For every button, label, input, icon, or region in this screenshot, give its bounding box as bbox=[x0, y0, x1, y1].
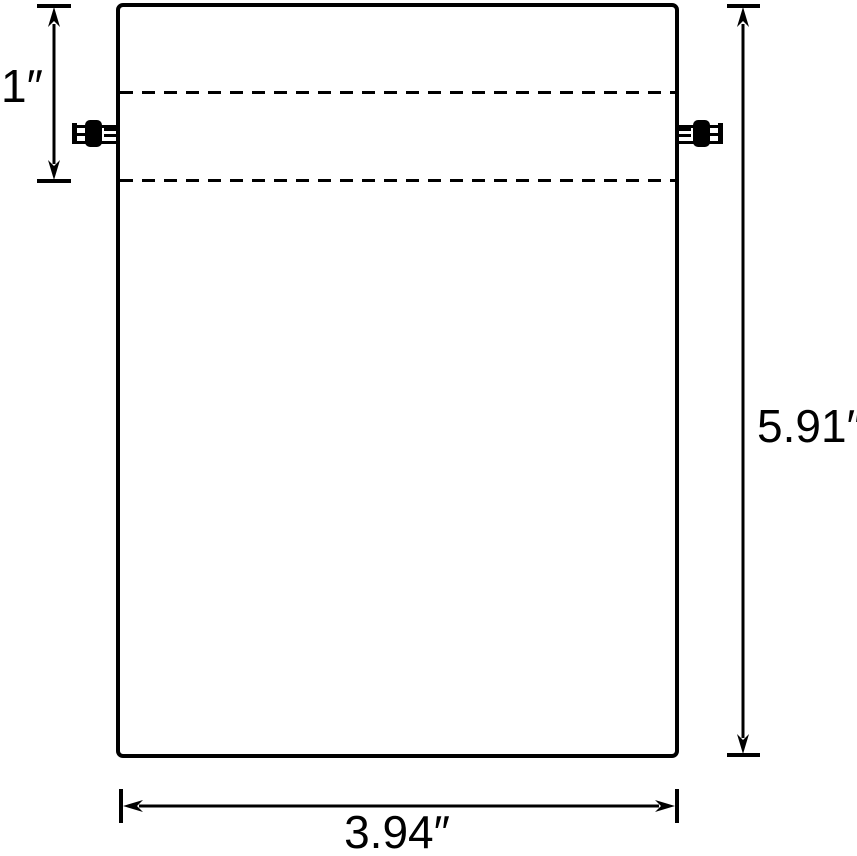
drawstring-channel-line-bottom bbox=[120, 179, 675, 182]
cord-end-bar bbox=[718, 123, 723, 144]
cord-lock-icon bbox=[677, 120, 723, 147]
bag-outline bbox=[116, 3, 679, 758]
dimension-label-bag-width: 3.94″ bbox=[262, 808, 532, 856]
cord-end-bar bbox=[72, 123, 77, 144]
cord-stripe bbox=[679, 128, 691, 131]
cord-stripe bbox=[679, 134, 691, 137]
cord-lock-body bbox=[693, 120, 710, 147]
diagram-canvas: 1″ 5.91″ 3.94″ bbox=[0, 0, 857, 856]
drawstring-channel-line-top bbox=[120, 91, 675, 94]
cord-stripe bbox=[104, 128, 116, 131]
cord-lock-icon bbox=[72, 120, 118, 147]
cord-stripe bbox=[104, 134, 116, 137]
dimension-bag-height bbox=[727, 6, 760, 755]
dimension-label-hem-height: 1″ bbox=[1, 62, 43, 110]
cord-lock-body bbox=[85, 120, 102, 147]
dimension-label-bag-height: 5.91″ bbox=[757, 402, 857, 450]
